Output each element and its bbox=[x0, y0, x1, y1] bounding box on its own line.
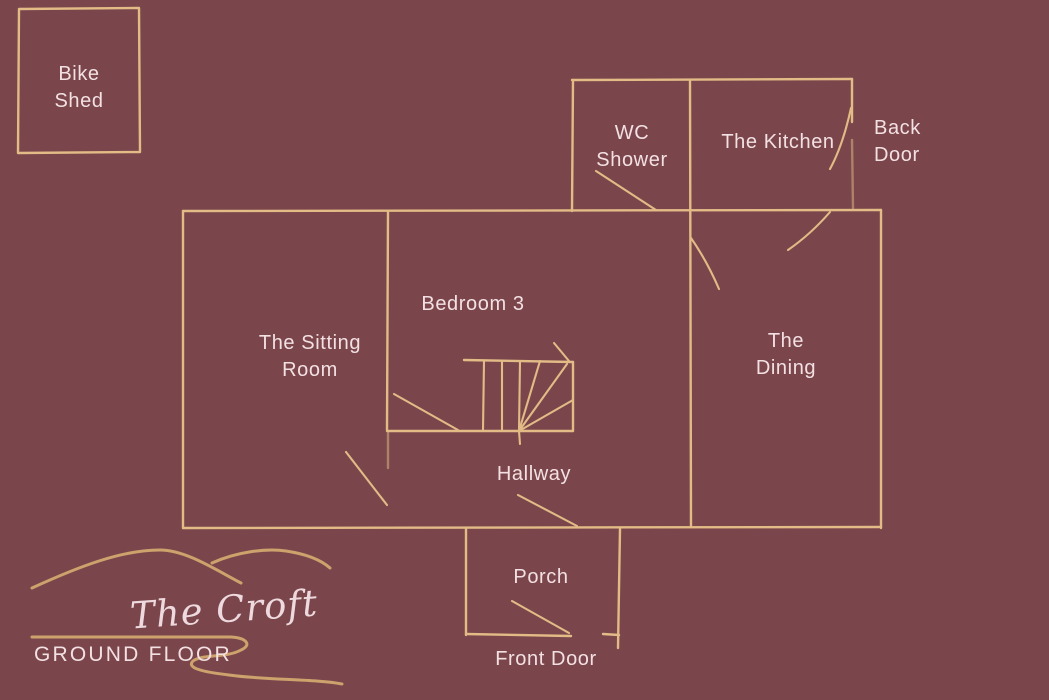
back-door-label: Back Door bbox=[874, 115, 921, 169]
stairs-tread-1 bbox=[483, 361, 484, 430]
dining-label: The Dining bbox=[756, 328, 816, 382]
wc-shower-label-line2: Shower bbox=[596, 147, 667, 174]
stairs-newel-tick bbox=[519, 431, 520, 444]
stairs-top-edge bbox=[464, 360, 573, 362]
porch-right-wall bbox=[618, 529, 620, 648]
stairs-tread-3 bbox=[519, 361, 520, 431]
bike-shed-label-line1: Bike bbox=[54, 61, 103, 88]
stairs-corner-stroke bbox=[554, 343, 569, 361]
back-door-label-line2: Door bbox=[874, 142, 921, 169]
dining-door-swing-west bbox=[691, 238, 719, 289]
bedroom-door-swing bbox=[394, 394, 458, 430]
porch-label: Porch bbox=[513, 564, 568, 591]
back-door-label-line1: Back bbox=[874, 115, 921, 142]
dining-door-swing-north bbox=[788, 212, 830, 250]
dining-label-line2: Dining bbox=[756, 355, 816, 382]
sitting-room-label-line1: The Sitting bbox=[259, 330, 361, 357]
kitchen-label: The Kitchen bbox=[721, 129, 834, 156]
bike-shed-label: Bike Shed bbox=[54, 61, 103, 115]
porch-bottom-wall bbox=[466, 634, 571, 636]
main-bottom-wall bbox=[183, 527, 881, 528]
hallway-label: Hallway bbox=[497, 461, 571, 488]
front-door-swing bbox=[512, 601, 569, 633]
dining-label-line1: The bbox=[756, 328, 816, 355]
front-door-label: Front Door bbox=[495, 646, 597, 673]
bike-shed-label-line2: Shed bbox=[54, 88, 103, 115]
hallway-door-swing bbox=[518, 495, 577, 526]
wc-shower-label: WC Shower bbox=[596, 120, 667, 174]
center-divider-wall bbox=[690, 80, 691, 527]
kitchen-right-wall-lower bbox=[852, 140, 853, 208]
bedroom3-label: Bedroom 3 bbox=[421, 291, 524, 318]
wc-shower-label-line1: WC bbox=[596, 120, 667, 147]
floor-subtitle: GROUND FLOOR bbox=[34, 643, 232, 667]
sitting-room-divider-wall bbox=[387, 211, 388, 430]
sitting-room-label-line2: Room bbox=[259, 357, 361, 384]
sitting-room-door-swing bbox=[346, 452, 387, 505]
hill-flourish-2 bbox=[212, 550, 330, 568]
floor-plan: Bike Shed WC Shower The Kitchen Back Doo… bbox=[0, 0, 1049, 700]
porch-bottom-stub bbox=[603, 634, 619, 635]
hill-flourish-1 bbox=[32, 550, 241, 588]
wc-door-swing bbox=[596, 171, 656, 210]
main-top-wall bbox=[183, 210, 881, 211]
stairs-winder-2 bbox=[519, 364, 567, 431]
sitting-room-label: The Sitting Room bbox=[259, 330, 361, 384]
annex-top-wall bbox=[572, 79, 852, 80]
annex-left-wall bbox=[572, 80, 573, 211]
